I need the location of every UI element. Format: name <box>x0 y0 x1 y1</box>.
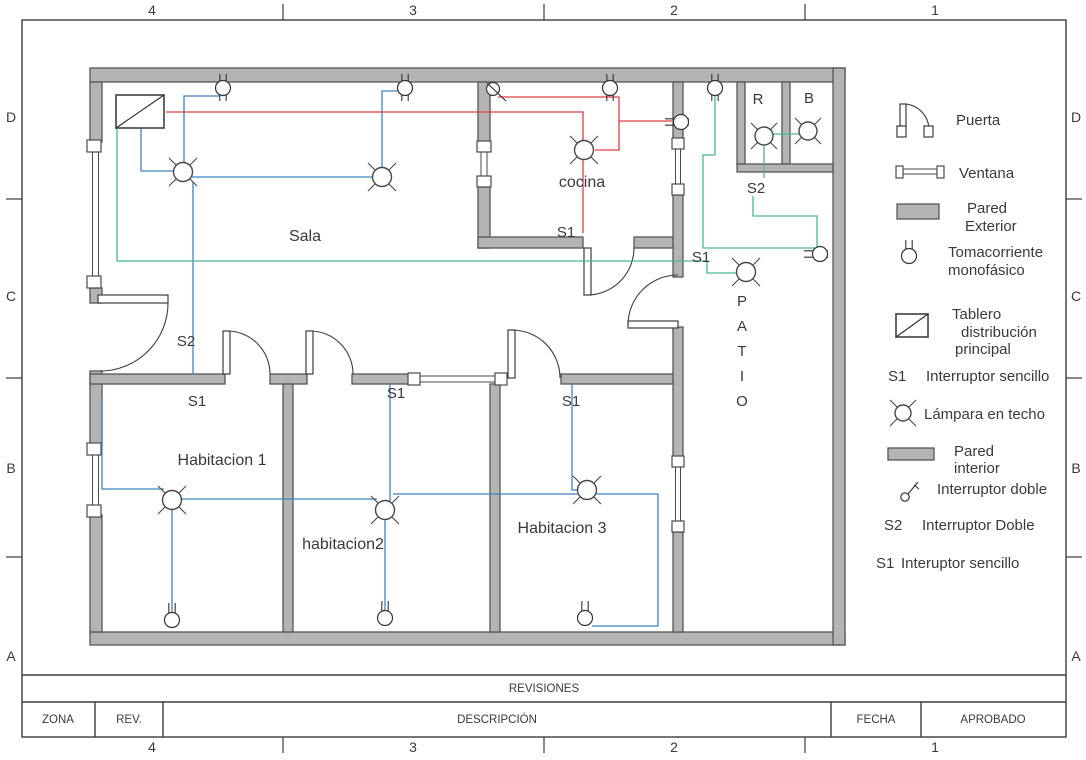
legend-label-panel-2: distribución <box>961 324 1037 341</box>
legend-label-exterior-wall-2: Exterior <box>965 218 1017 235</box>
wall-segment <box>90 515 102 632</box>
title-block-col-rev: REV. <box>116 714 142 726</box>
legend-label-outlet-2: monofásico <box>948 262 1025 279</box>
lamp-icon <box>169 158 197 186</box>
zone-col-bottom: 3 <box>409 739 417 755</box>
svg-text:P: P <box>737 293 747 310</box>
window <box>481 152 487 176</box>
switch-label-s1-sala: S1 <box>188 393 206 410</box>
outlet-icon <box>804 247 828 262</box>
door-leaf <box>98 295 168 303</box>
wire-blue <box>393 494 658 626</box>
lamp-icon <box>368 163 396 191</box>
title-block-revisions-header: REVISIONES <box>509 683 580 695</box>
wall-segment <box>270 374 307 384</box>
wiring-red-circuit <box>166 97 672 233</box>
zone-col-bottom: 1 <box>931 739 939 755</box>
legend-key-s2: S2 <box>884 517 902 534</box>
window-cap <box>408 373 420 385</box>
wall-segment <box>673 195 683 277</box>
outlet-icon <box>665 115 689 130</box>
window-cap <box>87 140 101 152</box>
lamp-legend-icon <box>890 400 916 426</box>
window-cap <box>672 184 684 195</box>
lamp-icon <box>573 476 601 504</box>
wall-segment <box>90 632 845 645</box>
wire-red <box>166 112 583 141</box>
lamp-icon <box>732 258 760 286</box>
zone-col-top: 1 <box>931 2 939 18</box>
wire-blue <box>184 96 220 164</box>
door-arc <box>628 275 678 325</box>
wall-segment <box>833 68 845 645</box>
switch-label-s2-patio: S2 <box>747 180 765 197</box>
switch-label-s2-sala: S2 <box>177 333 195 350</box>
window-cap <box>495 373 507 385</box>
lamp-icon <box>751 123 777 149</box>
zone-col-top: 2 <box>670 2 678 18</box>
room-label-hab1: Habitacion 1 <box>178 452 267 469</box>
legend-label-window: Ventana <box>959 165 1015 182</box>
wall-segment <box>283 384 293 632</box>
wall-segment <box>737 164 833 172</box>
legend-label-s2: Interruptor Doble <box>922 517 1035 534</box>
svg-text:I: I <box>740 368 744 385</box>
legend-label-interior-wall: Pared <box>954 443 994 460</box>
wall-segment <box>673 532 683 632</box>
room-label-sala: Sala <box>289 228 321 245</box>
interior-wall-legend-icon <box>888 448 934 460</box>
lamp-icon <box>570 136 598 164</box>
wall-segment <box>490 384 500 632</box>
room-label-hab2: habitacion2 <box>302 536 384 553</box>
outlet-icon <box>578 601 593 626</box>
wall-segment <box>90 68 845 82</box>
switch-label-s1-patio: S1 <box>692 249 710 266</box>
wall-segment <box>782 82 790 164</box>
legend-label-lamp: Lámpara en techo <box>924 406 1045 423</box>
door-arc <box>512 330 560 378</box>
switch-label-s1-hab3: S1 <box>562 393 580 410</box>
legend-label-double-switch: Interruptor doble <box>937 481 1047 498</box>
outlet-legend-icon <box>902 240 917 264</box>
zone-col-bottom: 4 <box>148 739 156 755</box>
wall-segment <box>90 374 225 384</box>
legend-key-s1: S1 <box>888 368 906 385</box>
wire-blue <box>382 91 402 168</box>
window-cap <box>87 443 101 455</box>
zone-row-right: B <box>1071 460 1080 476</box>
title-block: REVISIONES ZONA REV. DESCRIPCIÓN FECHA A… <box>22 675 1066 737</box>
wall-segment <box>673 82 683 140</box>
room-label-r: R <box>753 91 764 108</box>
svg-text:O: O <box>736 393 748 410</box>
zone-col-top: 4 <box>148 2 156 18</box>
lamp-icon <box>158 486 186 514</box>
wire-green <box>703 96 816 252</box>
door-leaf <box>628 321 678 328</box>
zone-row-left: B <box>6 460 15 476</box>
legend-label-s1: Interruptor sencillo <box>926 368 1049 385</box>
zone-row-right: A <box>1071 648 1081 664</box>
walls <box>90 68 845 645</box>
wiring-green-circuit <box>117 96 817 273</box>
switch-label-s1-hab2: S1 <box>387 385 405 402</box>
exterior-wall-legend-icon <box>897 204 939 219</box>
wire-green <box>117 128 737 273</box>
legend-label-outlet: Tomacorriente <box>948 244 1043 261</box>
panel-legend-icon <box>896 314 928 337</box>
room-label-hab3: Habitacion 3 <box>518 520 607 537</box>
legend-label-panel-3: principal <box>955 341 1011 358</box>
window-legend-icon <box>896 166 944 178</box>
zone-row-left: D <box>6 109 16 125</box>
window-cap <box>672 456 684 467</box>
title-block-col-aprobado: APROBADO <box>960 714 1025 726</box>
window-cap <box>477 141 491 152</box>
legend: Puerta Ventana Pared Exterior Tomacorrie… <box>876 104 1049 572</box>
wire-blue <box>141 128 175 171</box>
wall-segment <box>352 374 410 384</box>
window <box>676 467 681 521</box>
svg-text:T: T <box>737 343 746 360</box>
legend-label-interior-wall-2: interior <box>954 460 1000 477</box>
window <box>676 149 681 184</box>
wall-segment <box>673 327 683 458</box>
zone-row-right: D <box>1071 109 1081 125</box>
wall-segment <box>634 237 673 248</box>
window-cap <box>672 138 684 149</box>
lamp-icon <box>371 496 399 524</box>
title-block-col-zona: ZONA <box>42 714 74 726</box>
legend-label-s1b: Interuptor sencillo <box>901 555 1019 572</box>
zone-row-left: A <box>6 648 16 664</box>
zone-col-top: 3 <box>409 2 417 18</box>
door-leaf <box>223 331 230 374</box>
window-cap <box>477 176 491 187</box>
distribution-panel-icon <box>116 95 164 128</box>
room-label-cocina: cocina <box>559 174 605 191</box>
title-block-col-fecha: FECHA <box>857 714 896 726</box>
door-arc <box>587 248 634 295</box>
wire-blue <box>102 398 164 489</box>
title-block-col-descripcion: DESCRIPCIÓN <box>457 713 537 726</box>
window-cap <box>87 276 101 288</box>
window-cap <box>87 505 101 517</box>
zone-row-right: C <box>1071 288 1081 304</box>
window <box>93 455 99 505</box>
electrical-floor-plan-svg: 4 3 2 1 4 3 2 1 D C B A D C B A <box>0 0 1086 760</box>
legend-label-door: Puerta <box>956 112 1001 129</box>
room-label-patio: P A T I O <box>736 293 748 410</box>
door-arc <box>310 331 353 374</box>
switch-label-s1-cocina: S1 <box>557 224 575 241</box>
door-arc <box>227 331 270 374</box>
window <box>93 152 99 276</box>
legend-key-s1b: S1 <box>876 555 894 572</box>
zone-row-left: C <box>6 288 16 304</box>
room-label-b: B <box>804 90 814 107</box>
door-leaf <box>508 330 515 378</box>
drawing-page: 4 3 2 1 4 3 2 1 D C B A D C B A <box>0 0 1086 760</box>
doors <box>98 248 678 378</box>
wall-segment <box>737 82 745 164</box>
window <box>420 376 495 382</box>
wire-green <box>753 196 817 247</box>
legend-label-exterior-wall: Pared <box>967 200 1007 217</box>
lamp-icon <box>795 118 821 144</box>
wall-segment <box>561 374 673 384</box>
door-arc <box>100 303 168 371</box>
window-cap <box>672 521 684 532</box>
wall-segment <box>90 82 102 142</box>
double-switch-legend-icon <box>901 482 919 501</box>
zone-col-bottom: 2 <box>670 739 678 755</box>
door-leaf <box>306 331 313 374</box>
door-leaf <box>584 248 591 295</box>
door-legend-icon <box>897 104 933 137</box>
wire-red <box>595 97 619 150</box>
svg-text:A: A <box>737 318 747 335</box>
legend-label-panel: Tablero <box>952 306 1001 323</box>
